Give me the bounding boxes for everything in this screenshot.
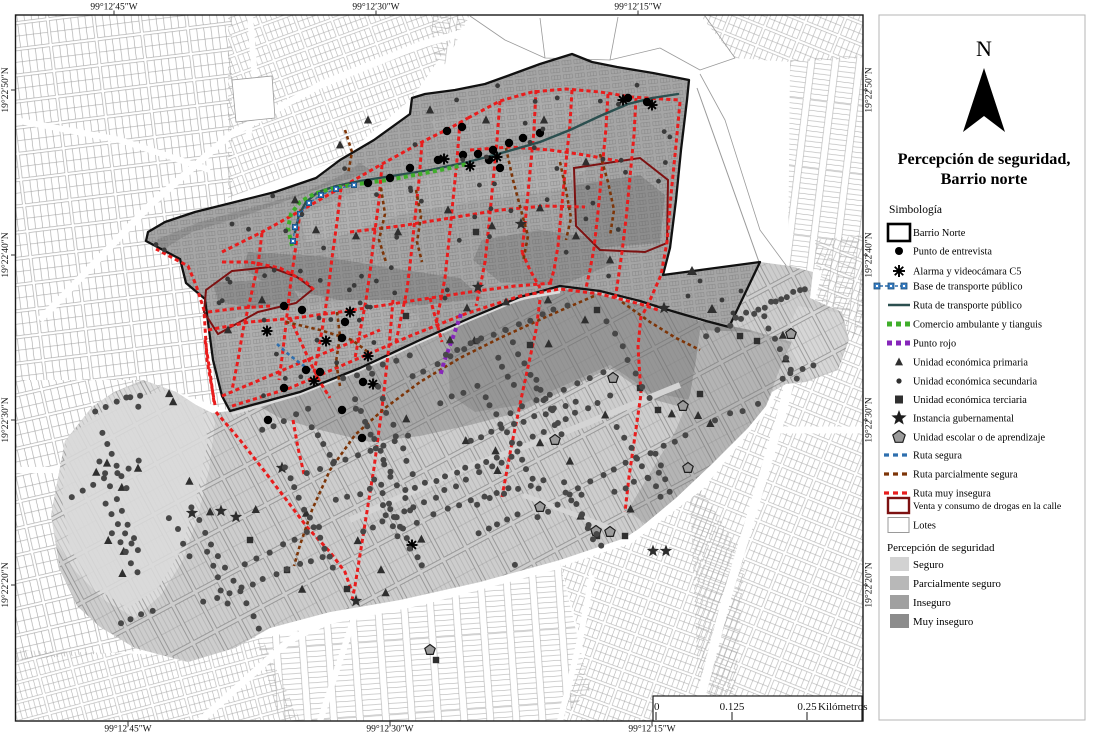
svg-text:Ruta parcialmente segura: Ruta parcialmente segura bbox=[913, 470, 1018, 481]
svg-text:99°12′15″W: 99°12′15″W bbox=[628, 724, 675, 733]
svg-text:19°22′30″N: 19°22′30″N bbox=[864, 397, 875, 442]
svg-text:0.125: 0.125 bbox=[720, 701, 745, 713]
svg-text:Ruta muy insegura: Ruta muy insegura bbox=[913, 489, 991, 500]
svg-text:Percepción de seguridad,: Percepción de seguridad, bbox=[898, 150, 1071, 168]
svg-text:19°22′20″N: 19°22′20″N bbox=[864, 562, 875, 607]
svg-text:Alarma y videocámara C5: Alarma y videocámara C5 bbox=[913, 267, 1021, 278]
svg-text:Percepción de seguridad: Percepción de seguridad bbox=[887, 542, 995, 554]
svg-text:99°12′30″W: 99°12′30″W bbox=[366, 724, 413, 733]
svg-text:Inseguro: Inseguro bbox=[913, 597, 951, 609]
svg-text:Parcialmente seguro: Parcialmente seguro bbox=[913, 578, 1001, 590]
svg-text:Instancia gubernamental: Instancia gubernamental bbox=[913, 414, 1014, 425]
svg-text:Muy inseguro: Muy inseguro bbox=[913, 616, 973, 628]
svg-text:0.25: 0.25 bbox=[797, 701, 817, 713]
svg-text:N: N bbox=[976, 36, 992, 61]
svg-text:Lotes: Lotes bbox=[913, 521, 936, 532]
svg-text:Comercio ambulante y tianguis: Comercio ambulante y tianguis bbox=[913, 320, 1042, 331]
svg-text:19°22′40″N: 19°22′40″N bbox=[864, 232, 875, 277]
svg-text:Punto rojo: Punto rojo bbox=[913, 339, 956, 350]
svg-text:Unidad económica terciaria: Unidad económica terciaria bbox=[913, 395, 1027, 406]
svg-text:19°22′50″N: 19°22′50″N bbox=[0, 67, 11, 112]
svg-text:0: 0 bbox=[654, 701, 660, 713]
svg-text:19°22′30″N: 19°22′30″N bbox=[0, 397, 11, 442]
svg-text:Seguro: Seguro bbox=[913, 559, 944, 571]
svg-text:Simbología: Simbología bbox=[889, 204, 942, 216]
svg-text:19°22′20″N: 19°22′20″N bbox=[0, 562, 11, 607]
svg-text:Venta y consumo de drogas en l: Venta y consumo de drogas en la calle bbox=[913, 501, 1061, 512]
svg-text:Base de transporte público: Base de transporte público bbox=[913, 282, 1023, 293]
svg-text:99°12′30″W: 99°12′30″W bbox=[352, 2, 399, 13]
svg-text:Unidad escolar o de aprendizaj: Unidad escolar o de aprendizaje bbox=[913, 433, 1046, 444]
svg-text:19°22′50″N: 19°22′50″N bbox=[864, 67, 875, 112]
svg-text:99°12′45″W: 99°12′45″W bbox=[104, 724, 151, 733]
svg-text:99°12′45″W: 99°12′45″W bbox=[90, 2, 137, 13]
svg-text:Punto de entrevista: Punto de entrevista bbox=[913, 247, 992, 258]
svg-text:Ruta segura: Ruta segura bbox=[913, 451, 962, 462]
svg-text:Unidad económica secundaria: Unidad económica secundaria bbox=[913, 377, 1038, 388]
svg-text:99°12′15″W: 99°12′15″W bbox=[614, 2, 661, 13]
svg-text:Barrio norte: Barrio norte bbox=[941, 170, 1028, 188]
svg-text:Ruta de transporte público: Ruta de transporte público bbox=[913, 301, 1022, 312]
svg-text:19°22′40″N: 19°22′40″N bbox=[0, 232, 11, 277]
svg-text:Barrio Norte: Barrio Norte bbox=[913, 228, 966, 239]
svg-text:Kilómetros: Kilómetros bbox=[818, 701, 868, 713]
svg-text:Unidad económica primaria: Unidad económica primaria bbox=[913, 358, 1028, 369]
